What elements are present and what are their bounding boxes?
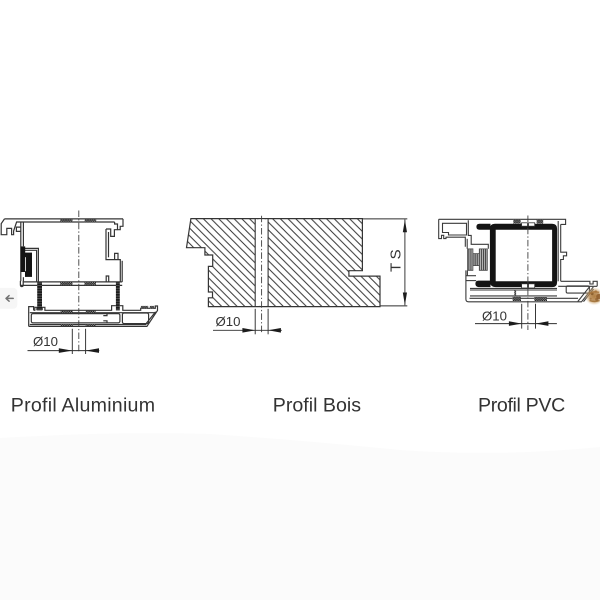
svg-text:Profil Bois: Profil Bois <box>273 394 361 416</box>
svg-text:Ø10: Ø10 <box>33 334 58 349</box>
svg-text:Profil Aluminium: Profil Aluminium <box>11 394 155 416</box>
svg-text:Profil PVC: Profil PVC <box>478 394 565 416</box>
svg-text:TS: TS <box>388 246 405 272</box>
svg-text:Ø10: Ø10 <box>482 308 507 323</box>
svg-text:Ø10: Ø10 <box>216 314 241 329</box>
